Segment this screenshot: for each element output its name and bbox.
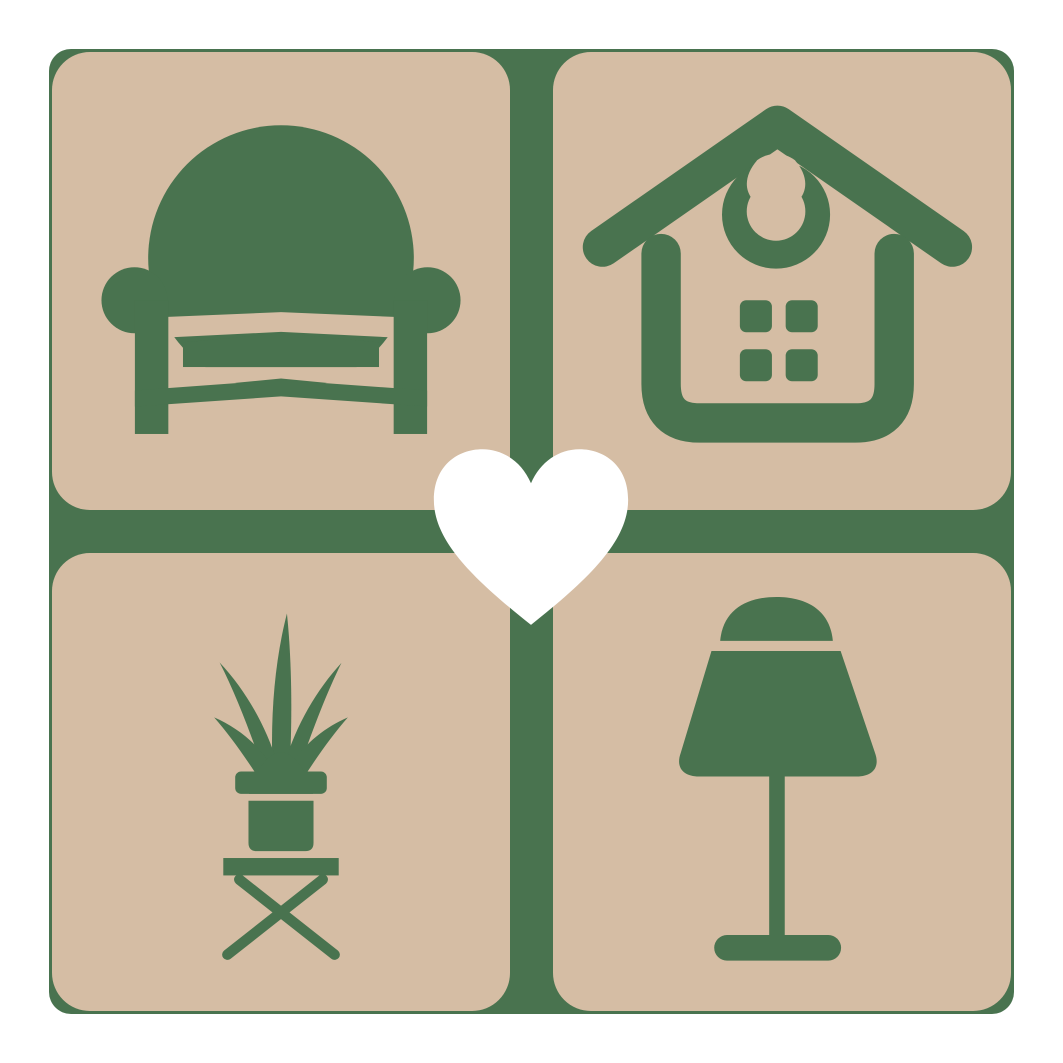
tile-armchair — [52, 52, 510, 510]
tile-house — [553, 52, 1011, 510]
armchair-icon — [52, 52, 510, 510]
house-icon — [553, 52, 1011, 510]
logo-canvas — [0, 0, 1063, 1063]
heart-icon — [421, 443, 641, 629]
